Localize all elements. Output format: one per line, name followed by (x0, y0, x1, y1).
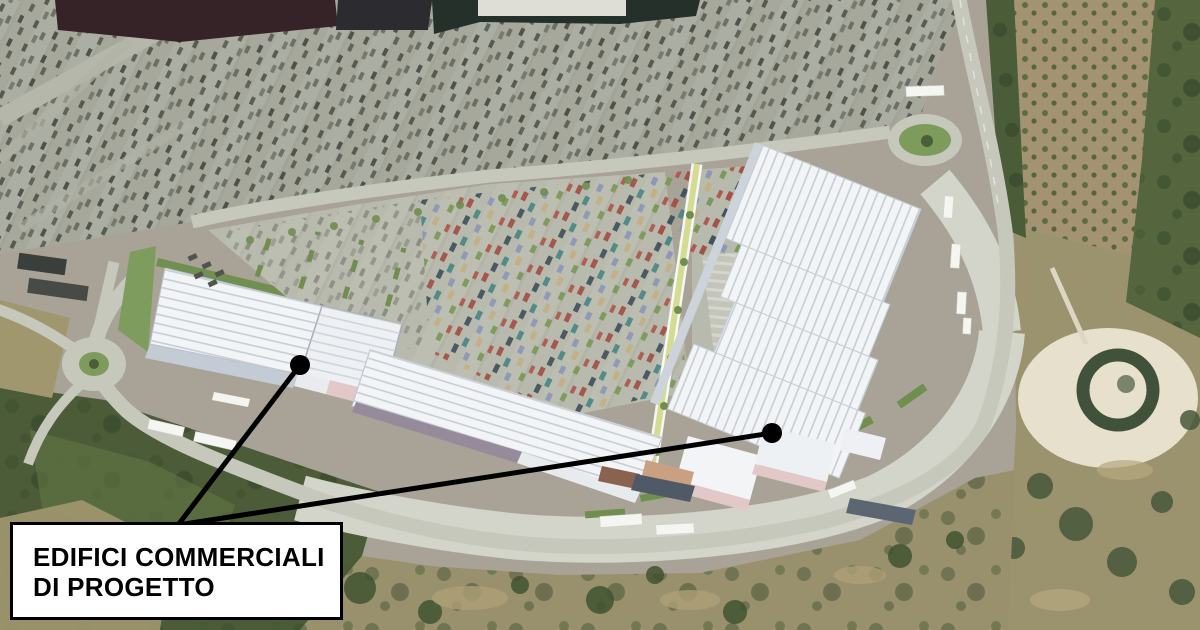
dirt-clearing (1018, 328, 1198, 468)
roundabout-top (888, 114, 962, 166)
annotation-dot-1 (290, 355, 310, 375)
annotation-label-box: EDIFICI COMMERCIALI DI PROGETTO (10, 522, 343, 620)
roundabout-left (62, 337, 126, 391)
annotation-label-line2: DI PROGETTO (33, 572, 332, 602)
aerial-site-plan: EDIFICI COMMERCIALI DI PROGETTO (0, 0, 1200, 630)
annotation-dot-2 (762, 423, 782, 443)
annotation-label-line1: EDIFICI COMMERCIALI (33, 542, 332, 572)
